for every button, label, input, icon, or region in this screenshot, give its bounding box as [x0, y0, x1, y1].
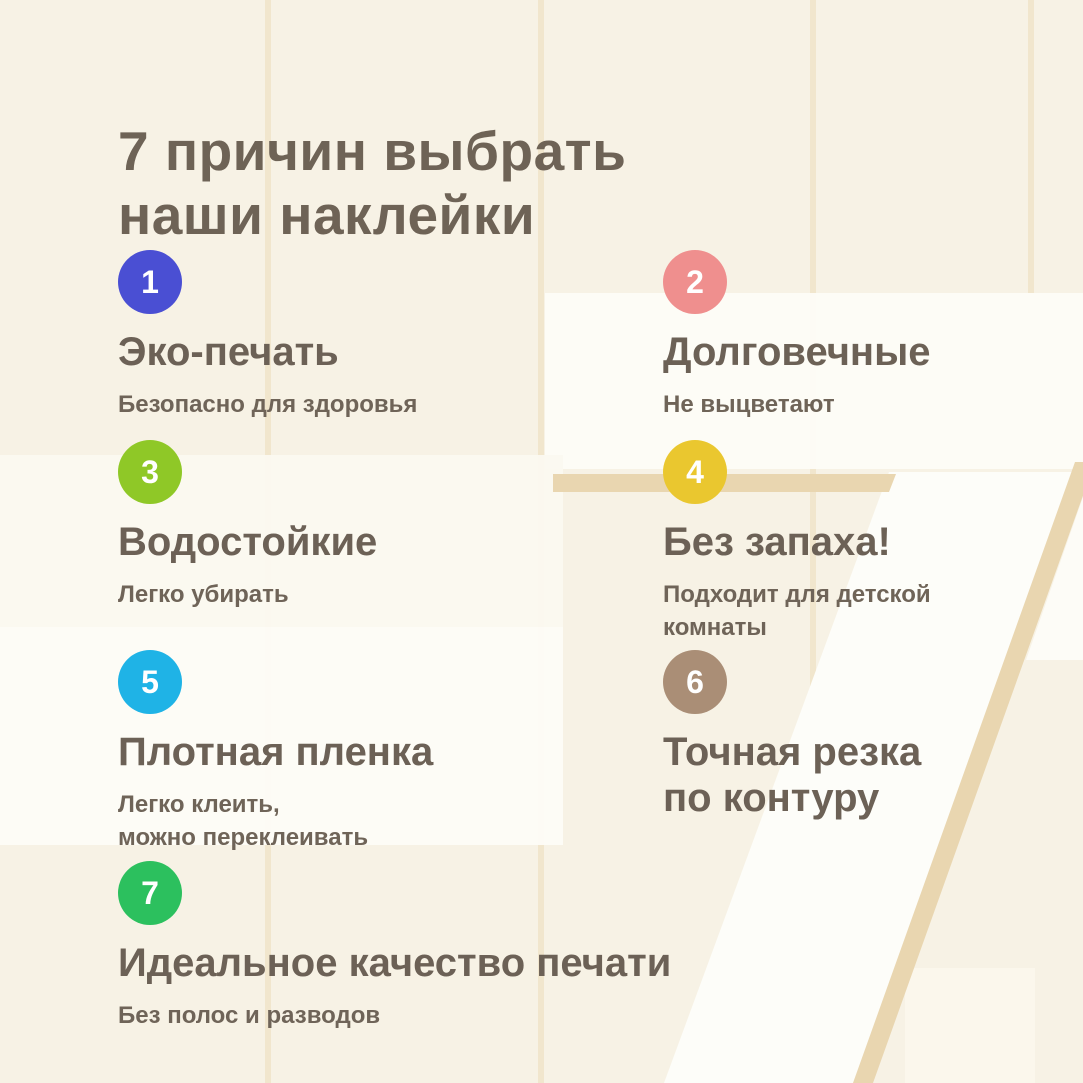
- reason-subtitle: Не выцветают: [663, 388, 963, 421]
- reason-item-6: 6 Точная резка по контуру: [663, 650, 963, 821]
- number-badge-1: 1: [118, 250, 182, 314]
- badge-number: 3: [141, 454, 159, 491]
- reason-title: Эко-печать: [118, 329, 578, 375]
- number-badge-5: 5: [118, 650, 182, 714]
- reason-subtitle: Безопасно для здоровья: [118, 388, 578, 421]
- reason-subtitle: Легко убирать: [118, 578, 578, 611]
- content-layer: 7 причин выбрать наши наклейки 1 Эко-печ…: [0, 0, 1083, 1083]
- reason-subtitle: Без полос и разводов: [118, 999, 778, 1032]
- reason-subtitle: Подходит для детской комнаты: [663, 578, 953, 644]
- badge-number: 5: [141, 664, 159, 701]
- reason-title: Идеальное качество печати: [118, 940, 778, 986]
- reason-title: Плотная пленка: [118, 729, 578, 775]
- number-badge-2: 2: [663, 250, 727, 314]
- page-title-line1: 7 причин выбрать: [118, 120, 626, 182]
- badge-number: 6: [686, 664, 704, 701]
- page-title-line2: наши наклейки: [118, 184, 535, 246]
- number-badge-7: 7: [118, 861, 182, 925]
- reason-title: Без запаха!: [663, 519, 953, 565]
- reason-title: Точная резка по контуру: [663, 729, 963, 821]
- reason-item-5: 5 Плотная пленка Легко клеить, можно пер…: [118, 650, 578, 854]
- number-badge-3: 3: [118, 440, 182, 504]
- badge-number: 4: [686, 454, 704, 491]
- reason-item-1: 1 Эко-печать Безопасно для здоровья: [118, 250, 578, 421]
- reason-title: Водостойкие: [118, 519, 578, 565]
- infographic-poster: 7 причин выбрать наши наклейки 1 Эко-печ…: [0, 0, 1083, 1083]
- badge-number: 2: [686, 264, 704, 301]
- page-title: 7 причин выбрать наши наклейки: [118, 119, 878, 248]
- reason-item-7: 7 Идеальное качество печати Без полос и …: [118, 861, 778, 1032]
- reason-item-2: 2 Долговечные Не выцветают: [663, 250, 963, 421]
- reason-subtitle: Легко клеить, можно переклеивать: [118, 788, 578, 854]
- number-badge-4: 4: [663, 440, 727, 504]
- badge-number: 7: [141, 875, 159, 912]
- reason-item-4: 4 Без запаха! Подходит для детской комна…: [663, 440, 953, 644]
- reason-title: Долговечные: [663, 329, 963, 375]
- badge-number: 1: [141, 264, 159, 301]
- reason-item-3: 3 Водостойкие Легко убирать: [118, 440, 578, 611]
- number-badge-6: 6: [663, 650, 727, 714]
